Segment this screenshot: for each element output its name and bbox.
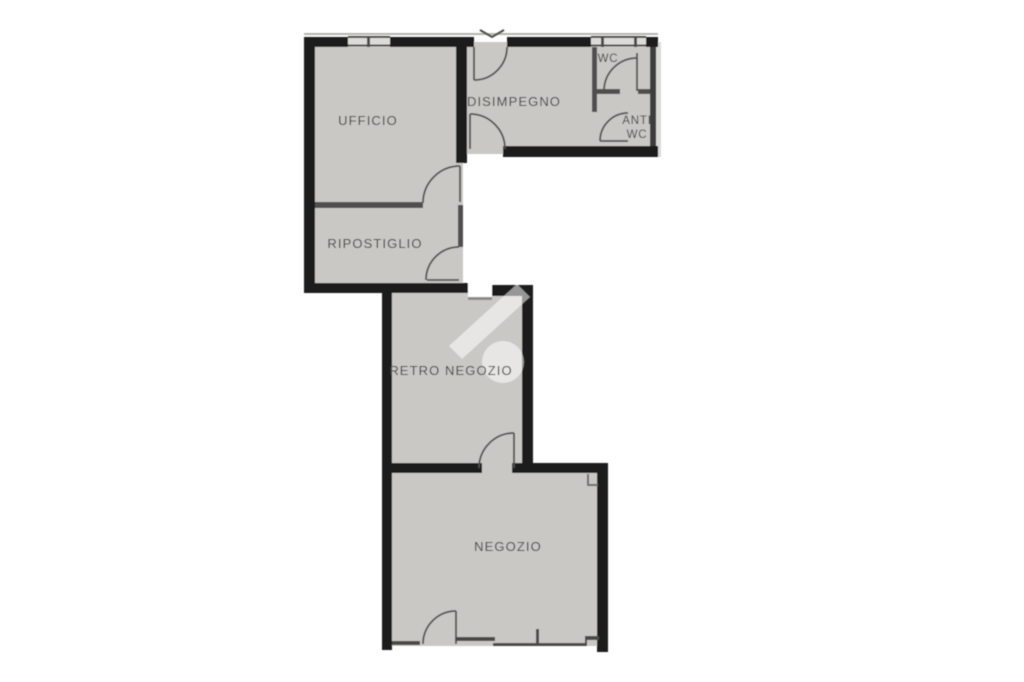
room-ripostiglio-label: RIPOSTIGLIO <box>327 236 422 251</box>
room-retro-negozio-label: RETRO NEGOZIO <box>389 363 512 378</box>
room-disimpegno-label: DISIMPEGNO <box>467 94 561 109</box>
room-negozio-floor <box>387 468 603 646</box>
wall-right-thin <box>650 47 656 146</box>
window-ufficio <box>348 36 390 47</box>
room-ufficio-label: UFFICIO <box>338 113 398 128</box>
storefront-mullion <box>536 629 539 646</box>
wall-disimpegno-bottom <box>503 146 658 157</box>
wall-negozio-right <box>597 463 608 652</box>
partition-ufficio-ripostiglio <box>315 202 423 208</box>
partition-wc-antiwc-stub <box>638 89 650 94</box>
wall-negozio-top-right <box>533 463 608 473</box>
wall-top-4 <box>646 37 658 47</box>
window-wc <box>591 36 646 47</box>
wall-top-2 <box>390 37 474 47</box>
outer-wall-face-line <box>304 33 658 35</box>
room-anti-wc-label-line1: ANTI <box>622 115 651 127</box>
partition-ripostiglio-right <box>458 205 463 247</box>
room-anti-wc-label-line2: WC <box>627 129 648 141</box>
scan-smudge <box>656 42 661 157</box>
partition-wc-left <box>592 47 597 92</box>
wall-negozio-top-left <box>382 463 482 473</box>
floor-plan-image: UFFICIO DISIMPEGNO WC ANTI WC RIPOSTIGLI… <box>0 0 1024 682</box>
retro-entry-threshold <box>468 297 492 300</box>
retro-entry-opening <box>468 280 492 297</box>
wall-ufficio-right <box>456 47 467 163</box>
wall-left-outer <box>304 37 315 289</box>
wall-top-3 <box>507 37 591 47</box>
floor-plan-drawing: UFFICIO DISIMPEGNO WC ANTI WC RIPOSTIGLI… <box>0 0 1024 682</box>
partition-antiwc-left <box>592 92 597 112</box>
wall-retro-right <box>522 285 533 473</box>
room-wc-label: WC <box>598 53 619 65</box>
room-negozio-label: NEGOZIO <box>474 539 542 554</box>
wall-negozio-top-mid <box>512 463 533 473</box>
